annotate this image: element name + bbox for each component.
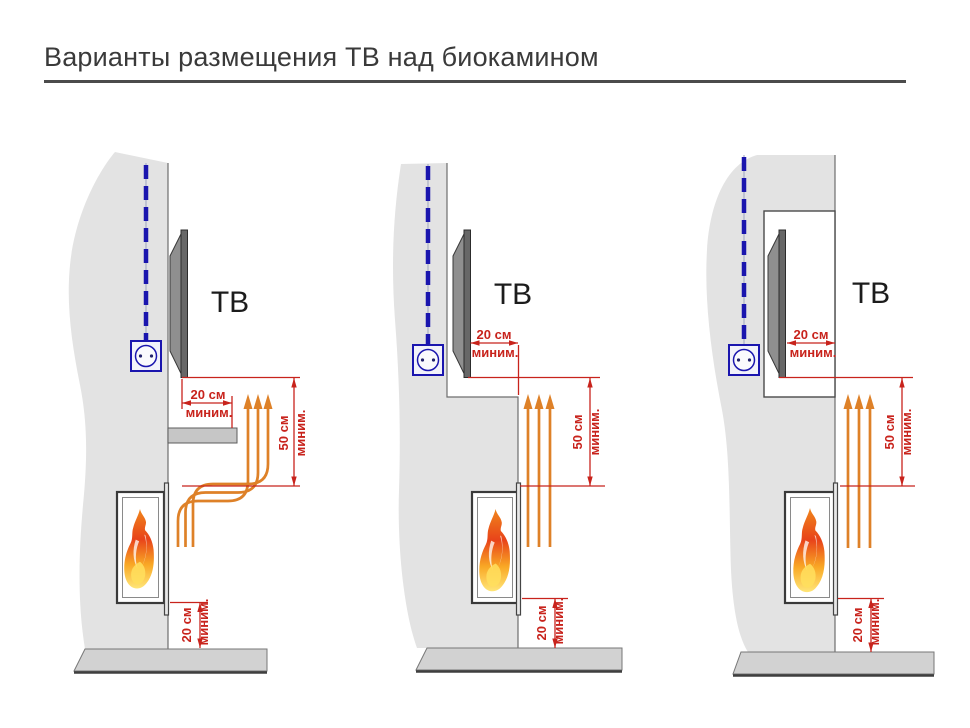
tv-side-view xyxy=(768,230,786,378)
dimension-50cm-vertical: 50 см миним. xyxy=(840,378,915,486)
svg-text:миним.: миним. xyxy=(196,599,211,646)
svg-text:миним.: миним. xyxy=(186,405,233,420)
tv-label: ТВ xyxy=(211,286,249,319)
dimension-20cm-floor: 20 см миним. xyxy=(170,599,211,648)
tv-side-view xyxy=(453,230,471,378)
slide: { "title": "Варианты размещения ТВ над б… xyxy=(0,0,970,728)
svg-text:20 см: 20 см xyxy=(850,608,865,643)
tv-label: ТВ xyxy=(494,278,532,311)
diagram-canvas: ТВ 20 см миним. xyxy=(0,0,970,728)
svg-text:20 см: 20 см xyxy=(534,606,549,641)
svg-text:50 см: 50 см xyxy=(882,415,897,450)
fireplace xyxy=(472,483,521,615)
svg-text:миним.: миним. xyxy=(899,409,914,456)
svg-text:50 см: 50 см xyxy=(570,415,585,450)
dimension-20cm-front: 20 см миним. xyxy=(468,327,600,395)
svg-text:20 см: 20 см xyxy=(477,327,512,342)
mantel-shelf xyxy=(168,428,237,443)
heat-flow-arrows xyxy=(524,394,555,547)
diagram-variant-2: ТВ 20 см миним. xyxy=(393,163,622,672)
svg-text:миним.: миним. xyxy=(472,345,519,360)
svg-text:миним.: миним. xyxy=(293,410,308,457)
dimension-20cm-floor: 20 см миним. xyxy=(838,599,884,653)
svg-text:миним.: миним. xyxy=(551,598,566,645)
fireplace-glass xyxy=(834,483,838,615)
floor-slab xyxy=(733,652,934,674)
svg-text:20 см: 20 см xyxy=(794,327,829,342)
svg-text:миним.: миним. xyxy=(790,345,837,360)
floor-slab xyxy=(416,648,622,670)
diagram-variant-3: ТВ 20 см миним. 5 xyxy=(706,155,934,676)
fireplace-glass xyxy=(165,483,169,615)
diagram-variant-1: ТВ 20 см миним. xyxy=(69,152,308,673)
fireplace xyxy=(117,483,169,615)
tv-side-view xyxy=(170,230,188,378)
svg-text:20 см: 20 см xyxy=(179,608,194,643)
floor-slab xyxy=(74,649,267,671)
heat-flow-arrows xyxy=(844,394,875,548)
fireplace-glass xyxy=(517,483,521,615)
svg-text:миним.: миним. xyxy=(587,409,602,456)
dimension-50cm-vertical: 50 см миним. xyxy=(520,378,605,486)
dimension-20cm-floor: 20 см миним. xyxy=(522,598,568,648)
fireplace xyxy=(785,483,838,615)
tv-label: ТВ xyxy=(852,277,890,310)
svg-text:20 см: 20 см xyxy=(191,387,226,402)
svg-text:50 см: 50 см xyxy=(276,416,291,451)
svg-text:миним.: миним. xyxy=(867,599,882,646)
